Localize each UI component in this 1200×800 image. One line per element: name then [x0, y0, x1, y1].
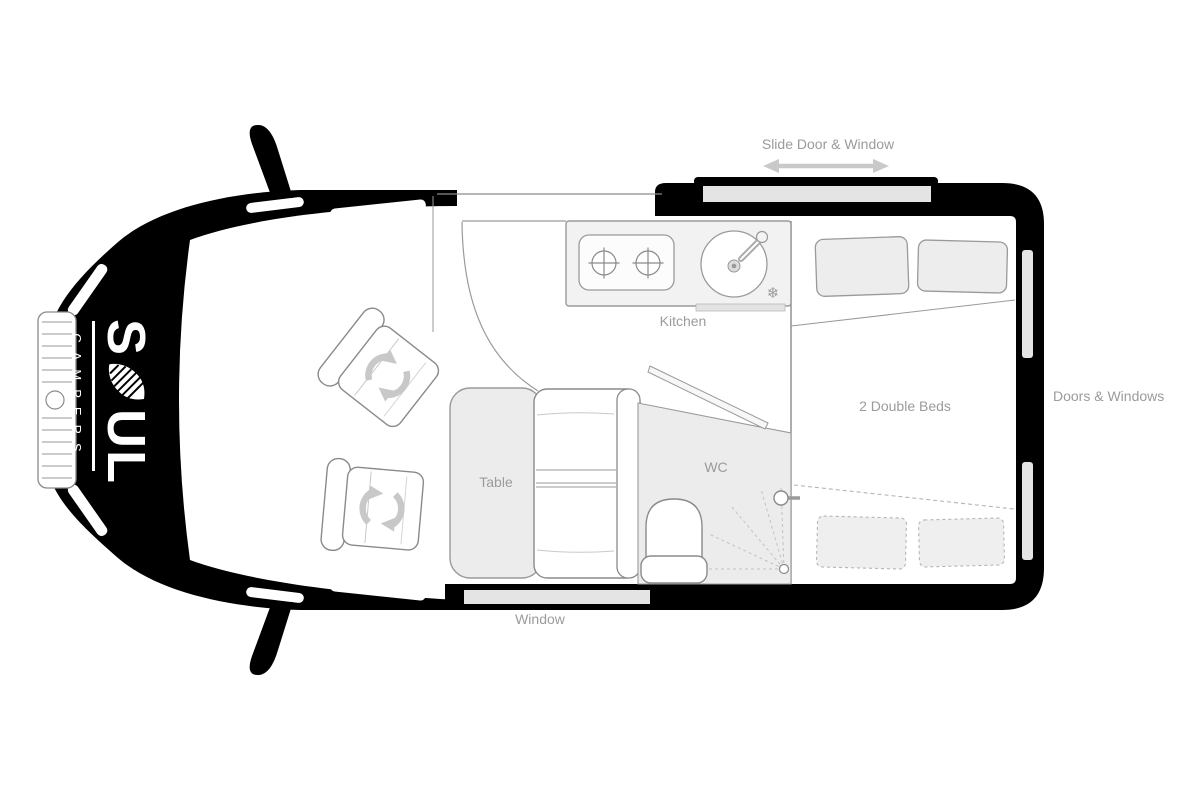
table-label: Table — [479, 474, 513, 490]
doors-windows-label: Doors & Windows — [1053, 388, 1164, 404]
optional-pillow — [816, 516, 906, 569]
bench-seat — [534, 389, 640, 578]
counter-shadow — [696, 304, 785, 311]
bottom-window-strip — [464, 590, 650, 604]
optional-bed-fold-line — [794, 485, 1014, 509]
bed-fold-line — [791, 300, 1015, 326]
pillow — [815, 236, 909, 296]
window-label: Window — [515, 611, 566, 627]
rear-window-strip-top — [1022, 250, 1033, 358]
floorplan-svg: S UL CAMPERS — [0, 0, 1200, 800]
slide-door-lip — [694, 177, 938, 186]
toilet-icon — [641, 499, 707, 583]
sink-icon — [701, 231, 768, 297]
beds-label: 2 Double Beds — [859, 398, 951, 414]
campervan-floorplan: S UL CAMPERS — [0, 0, 1200, 800]
pillow — [917, 240, 1007, 293]
rear-window-strip-bottom — [1022, 462, 1033, 560]
slide-door-arrow-icon — [763, 159, 889, 173]
kitchen-area: ❄ Kitchen — [566, 221, 791, 329]
door-handle-icon — [774, 491, 788, 505]
bed-area: 2 Double Beds — [791, 236, 1015, 569]
wc-area: WC — [638, 366, 800, 584]
entry-clearance-arc — [462, 222, 538, 391]
faucet-icon — [757, 232, 768, 243]
door-hinge-icon — [780, 565, 789, 574]
kitchen-label: Kitchen — [660, 313, 707, 329]
brand-wordmark-rest: UL — [96, 409, 156, 485]
swivel-seat-passenger — [320, 458, 425, 558]
brand-tagline: CAMPERS — [69, 333, 84, 460]
optional-pillow — [918, 518, 1004, 567]
mirror-top-icon — [250, 125, 293, 198]
wc-label: WC — [704, 459, 727, 475]
fridge-snowflake-icon: ❄ — [767, 284, 780, 302]
brand-wordmark-first: S — [96, 319, 156, 355]
slide-door-window-strip — [703, 186, 931, 202]
mirror-bottom-icon — [250, 602, 293, 675]
slide-door-label: Slide Door & Window — [762, 136, 895, 152]
